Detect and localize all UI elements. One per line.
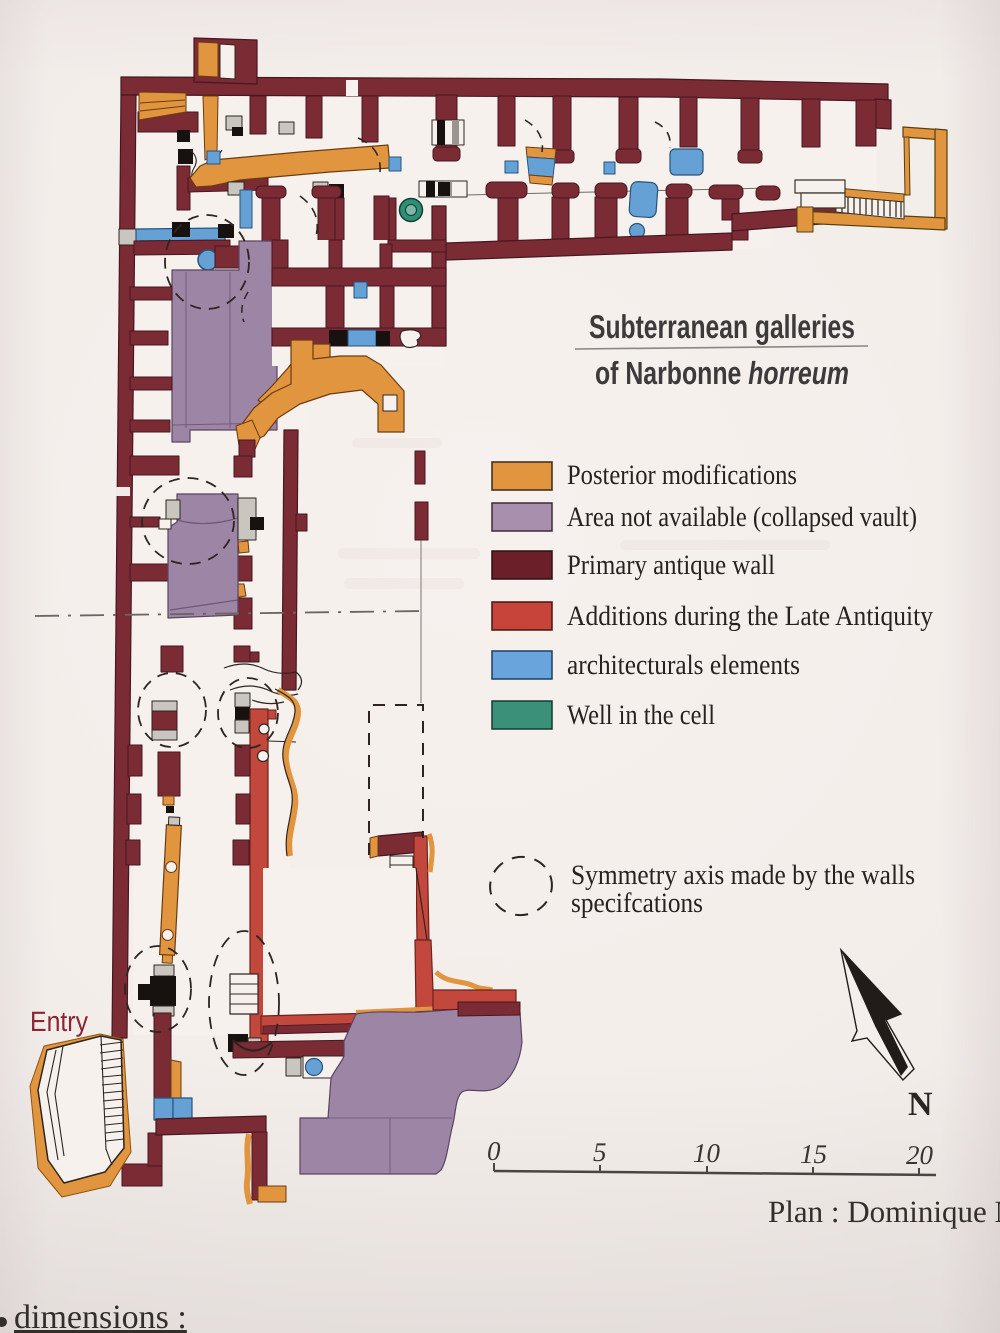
svg-text:Plan : Dominique N: Plan : Dominique N	[768, 1194, 1000, 1229]
svg-text:Symmetry axis made by the wall: Symmetry axis made by the walls	[571, 860, 915, 891]
svg-text:Additions during the Late Anti: Additions during the Late Antiquity	[567, 601, 933, 632]
svg-text:architecturals elements: architecturals elements	[567, 650, 800, 681]
svg-text:Primary antique wall: Primary antique wall	[567, 550, 775, 581]
svg-text:dimensions :: dimensions :	[14, 1299, 187, 1333]
svg-text:N: N	[908, 1086, 933, 1123]
svg-text:of Narbonne horreum: of Narbonne horreum	[595, 355, 849, 391]
svg-text:20: 20	[906, 1140, 934, 1170]
svg-text:Entry: Entry	[30, 1006, 88, 1037]
svg-text:10: 10	[693, 1138, 721, 1168]
svg-text:0: 0	[487, 1136, 501, 1166]
svg-text:Area not available (collapsed: Area not available (collapsed vault)	[567, 502, 917, 533]
svg-text:15: 15	[800, 1139, 827, 1169]
svg-text:specifcations: specifcations	[571, 888, 703, 919]
svg-text:Well in the cell: Well in the cell	[567, 700, 715, 731]
svg-text:Subterranean galleries: Subterranean galleries	[589, 308, 855, 345]
svg-text:Posterior modifications: Posterior modifications	[567, 460, 797, 491]
svg-text:5: 5	[593, 1137, 607, 1167]
